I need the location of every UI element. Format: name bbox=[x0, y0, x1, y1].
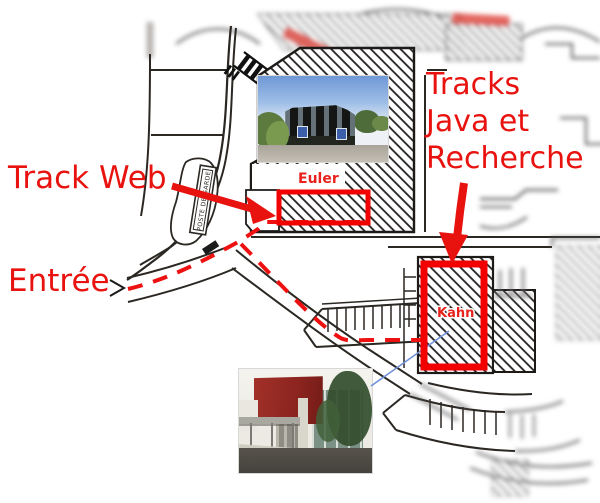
entree-chevron-icon bbox=[110, 280, 124, 296]
tracks-label-line3: Recherche bbox=[426, 140, 584, 177]
entree-label: Entrée bbox=[8, 263, 110, 299]
track-web-arrow bbox=[172, 186, 276, 224]
venue-map-slide: POSTE DE GARDE Euler bbox=[0, 0, 600, 503]
route-dashed-path-to-kahn bbox=[241, 244, 424, 340]
tracks-java-recherche-label: Tracks Java et Recherche bbox=[426, 66, 584, 177]
route-dashed-path-to-euler bbox=[128, 222, 368, 289]
tracks-label-line2: Java et bbox=[426, 103, 584, 140]
tracks-label-line1: Tracks bbox=[426, 66, 584, 103]
euler-highlight-rect bbox=[279, 192, 368, 223]
photo-to-kahn-connector-line bbox=[371, 331, 449, 386]
track-web-label: Track Web bbox=[8, 160, 167, 196]
tracks-java-arrow bbox=[439, 183, 468, 264]
kahn-highlight-rect bbox=[424, 264, 484, 367]
